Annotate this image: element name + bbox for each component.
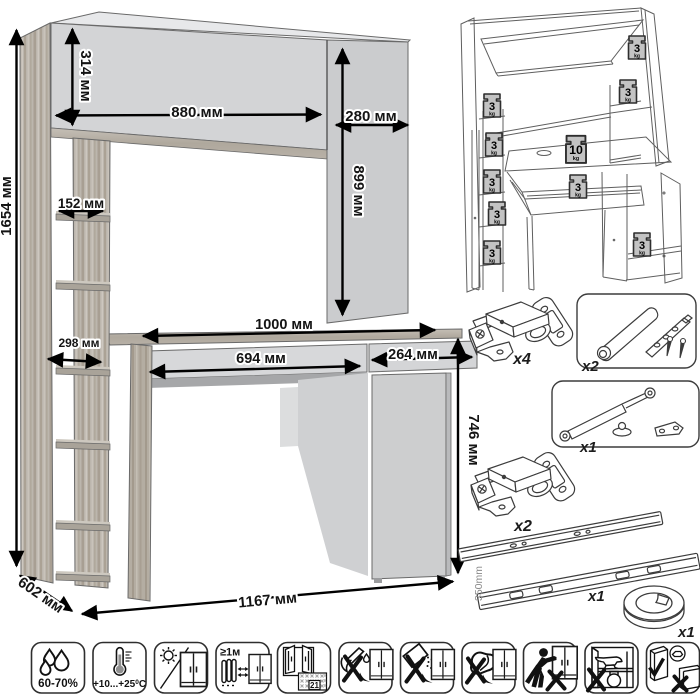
svg-text:+10...+250C: +10...+250C xyxy=(93,679,146,690)
svg-text:≥1м: ≥1м xyxy=(220,647,240,659)
svg-text:280 мм: 280 мм xyxy=(345,108,396,125)
svg-text:kg: kg xyxy=(634,54,640,60)
svg-text:60-70%: 60-70% xyxy=(38,678,78,690)
svg-text:kg: kg xyxy=(489,259,495,265)
svg-text:21: 21 xyxy=(310,681,319,690)
svg-text:x1: x1 xyxy=(677,624,695,641)
svg-text:x2: x2 xyxy=(581,358,599,375)
svg-text:x2: x2 xyxy=(513,518,532,535)
svg-text:kg: kg xyxy=(639,251,645,257)
svg-text:1654 мм: 1654 мм xyxy=(0,176,15,236)
svg-text:x1: x1 xyxy=(579,439,597,456)
svg-text:264 мм: 264 мм xyxy=(388,347,438,363)
svg-text:kg: kg xyxy=(489,112,495,118)
svg-text:kg: kg xyxy=(489,188,495,194)
svg-text:kg: kg xyxy=(494,220,500,226)
svg-text:350mm: 350mm xyxy=(473,566,485,601)
svg-text:x1: x1 xyxy=(587,588,605,605)
svg-text:746 мм: 746 мм xyxy=(465,414,482,465)
svg-text:899 мм: 899 мм xyxy=(350,165,367,216)
svg-text:694 мм: 694 мм xyxy=(236,351,286,367)
svg-text:kg: kg xyxy=(625,98,631,104)
svg-text:kg: kg xyxy=(575,193,581,199)
svg-text:298 мм: 298 мм xyxy=(58,336,99,350)
svg-text:880 мм: 880 мм xyxy=(171,104,222,121)
svg-text:x4: x4 xyxy=(512,351,531,368)
svg-text:152 мм: 152 мм xyxy=(58,196,104,211)
svg-text:10: 10 xyxy=(569,143,583,157)
svg-text:1167 мм: 1167 мм xyxy=(238,589,298,611)
svg-text:kg: kg xyxy=(491,151,497,157)
svg-text:1000 мм: 1000 мм xyxy=(255,317,313,333)
svg-text:kg: kg xyxy=(573,156,579,162)
svg-text:314 мм: 314 мм xyxy=(77,50,94,101)
